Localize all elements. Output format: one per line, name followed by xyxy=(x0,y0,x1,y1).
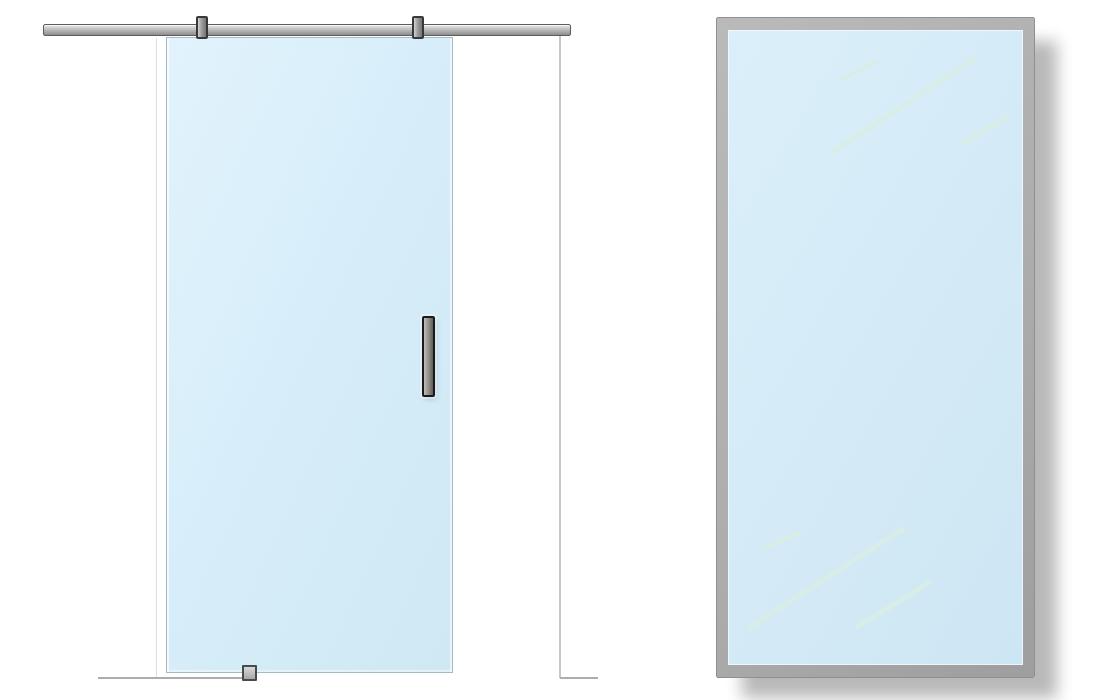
right-jamb-line xyxy=(559,36,561,678)
sliding-door-assembly xyxy=(0,0,640,700)
floor-line-left xyxy=(98,677,247,679)
panel-frame xyxy=(716,17,1035,678)
top-track-rail xyxy=(43,24,571,36)
reflection-streak xyxy=(963,116,1008,143)
roller-bracket-right xyxy=(412,16,424,39)
reflection-streak xyxy=(840,62,875,80)
framed-glass-panel-assembly xyxy=(640,0,1100,700)
left-jamb-line xyxy=(156,38,157,677)
floor-guide xyxy=(242,665,257,681)
reflection-streak xyxy=(766,532,800,548)
illustration-canvas xyxy=(0,0,1100,700)
floor-line-right xyxy=(560,677,598,679)
glass-reflection-streaks xyxy=(728,30,1023,665)
panel-glass xyxy=(728,30,1023,665)
glass-door-panel xyxy=(166,37,453,673)
door-handle-bar xyxy=(422,316,435,397)
reflection-streak xyxy=(857,582,930,627)
roller-bracket-left xyxy=(196,16,208,39)
